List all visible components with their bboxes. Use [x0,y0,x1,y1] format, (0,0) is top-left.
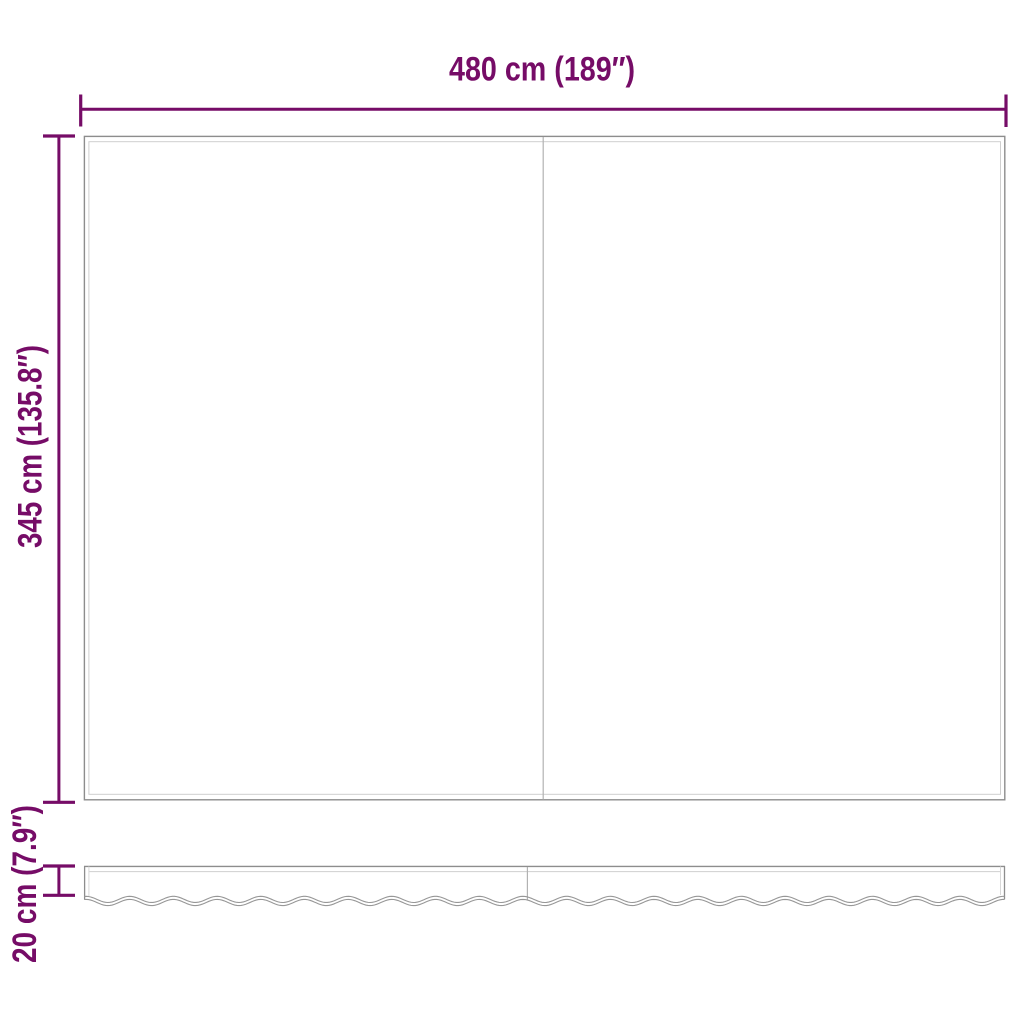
svg-text:480 cm (189″): 480 cm (189″) [449,51,635,89]
svg-text:345 cm (135.8″): 345 cm (135.8″) [12,345,50,548]
svg-text:20 cm (7.9″): 20 cm (7.9″) [6,805,44,963]
